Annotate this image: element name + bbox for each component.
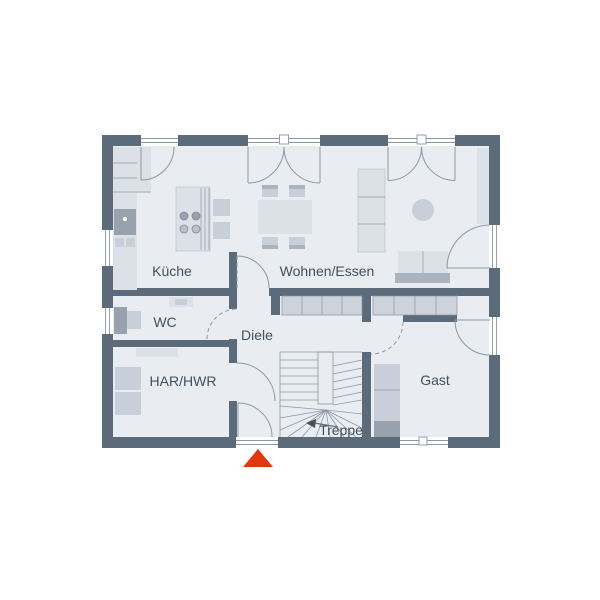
wc-window: [102, 308, 113, 334]
wc-sink-icon: [114, 307, 127, 334]
gast-cabinet-icon: [374, 421, 400, 437]
round-table-icon: [412, 199, 434, 221]
wall-treppe-gast: [362, 352, 371, 437]
dining-table-icon: [258, 200, 312, 234]
room-label-wohnen: Wohnen/Essen: [280, 263, 375, 279]
wall-har-diele: [229, 401, 237, 437]
french-door-living: [388, 135, 455, 146]
gast-terrace-door: [489, 317, 500, 355]
floorplan-canvas: Küche Wohnen/Essen WC Diele HAR/HWR Trep…: [0, 0, 600, 600]
room-label-diele: Diele: [241, 327, 273, 343]
wall-wc-har: [113, 340, 237, 347]
wall-wohnen-south: [269, 288, 489, 296]
dryer-icon: [115, 392, 141, 415]
kitchen-window: [102, 230, 113, 266]
bar-stool-icon: [213, 199, 230, 216]
har-shelf-icon: [136, 348, 178, 357]
room-label-gast: Gast: [420, 372, 450, 388]
bar-stool-icon: [213, 222, 230, 239]
window-handle-icon: [419, 437, 427, 445]
room-label-wc: WC: [153, 314, 176, 330]
gast-wardrobe-icon: [374, 364, 400, 421]
wall-wc-diele-upper: [229, 296, 237, 309]
french-door-dining: [248, 135, 320, 146]
wall-wc-diele-lower: [229, 339, 237, 363]
wall-closet-endcap: [271, 296, 280, 315]
entrance-door-opening: [236, 437, 278, 448]
washer-icon: [115, 367, 141, 390]
room-label-kueche: Küche: [152, 263, 192, 279]
door-handle-icon: [417, 135, 426, 144]
living-terrace-door: [489, 225, 500, 268]
tall-cabinet-icon: [358, 169, 385, 252]
wall-stub-kueche: [229, 252, 237, 296]
sofa-back-icon: [395, 273, 450, 283]
door-handle-icon: [280, 135, 289, 144]
kitchen-sink-icon: [114, 209, 136, 235]
wall-shelf-icon: [477, 148, 489, 224]
floorplan-drawing: Küche Wohnen/Essen WC Diele HAR/HWR Trep…: [0, 0, 600, 600]
room-label-treppe: Treppe: [319, 422, 363, 438]
wall-stub-gast-entry: [362, 288, 371, 322]
gast-furniture: [374, 364, 400, 437]
room-label-har-hwr: HAR/HWR: [150, 373, 217, 389]
wall-gast-north: [403, 315, 457, 322]
kitchen-terrace-door: [141, 135, 178, 146]
kitchen-small-appliance-icon: [126, 238, 135, 247]
bottom-window: [400, 437, 448, 448]
wc-toilet-icon: [127, 311, 141, 329]
kitchen-small-appliance-icon: [115, 238, 124, 247]
